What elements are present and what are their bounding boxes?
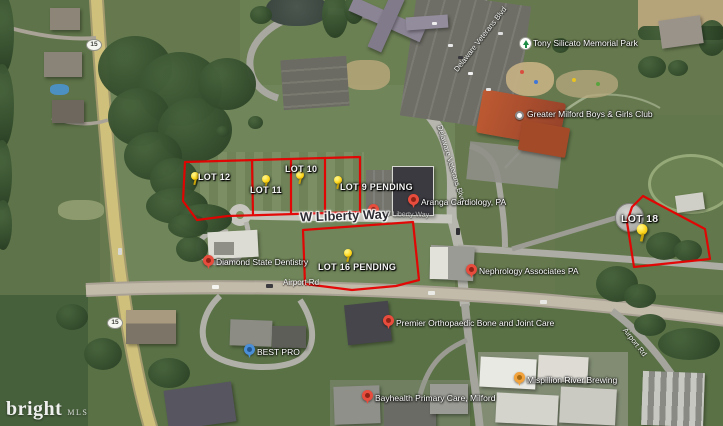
poi-dot-icon [515,111,524,120]
pushpin-icon [342,249,354,263]
lot-16-outline [303,222,419,290]
place-label: Mispillion River Brewing [527,375,617,385]
pushpin-icon [634,224,650,243]
street-banner: W Liberty Way [300,206,390,224]
place-label: Aranga Cardiology, PA [421,197,506,207]
road-label: Airport Rd [283,278,319,287]
place-pin-icon [408,194,419,205]
place-label: Greater Milford Boys & Girls Club [527,109,653,119]
place-label: Premier Orthopaedic Bone and Joint Care [396,318,554,328]
watermark-suffix: MLS [67,408,88,417]
satellite-map: LOT 12 LOT 11 LOT 10 LOT 9 PENDING LOT 1… [0,0,723,426]
route-shield: 15 [86,39,102,51]
brightmls-watermark: bright MLS [6,398,88,421]
place-label: Bayhealth Primary Care, Milford [375,393,495,403]
place-label: Diamond State Dentistry [216,257,308,267]
place-label: Tony Silicato Memorial Park [533,38,638,48]
lot-label: LOT 12 [198,172,230,182]
lot-label: LOT 18 [621,213,658,225]
lot-label: LOT 16 PENDING [318,262,396,272]
place-pin-icon [383,315,394,326]
place-pin-icon [244,344,255,355]
lot-label: LOT 11 [250,185,282,195]
place-pin-icon [514,372,525,383]
route-shield: 15 [107,317,123,329]
lot-label: LOT 10 [285,164,317,174]
watermark-brand: bright [6,398,62,421]
place-pin-icon [362,390,373,401]
place-label: Nephrology Associates PA [479,266,579,276]
place-pin-icon [203,255,214,266]
place-label: BEST PRO [257,347,300,357]
lot-label: LOT 9 PENDING [340,182,413,192]
place-pin-icon [466,264,477,275]
park-icon [519,37,532,50]
road-label: W Liberty Way [384,211,429,219]
